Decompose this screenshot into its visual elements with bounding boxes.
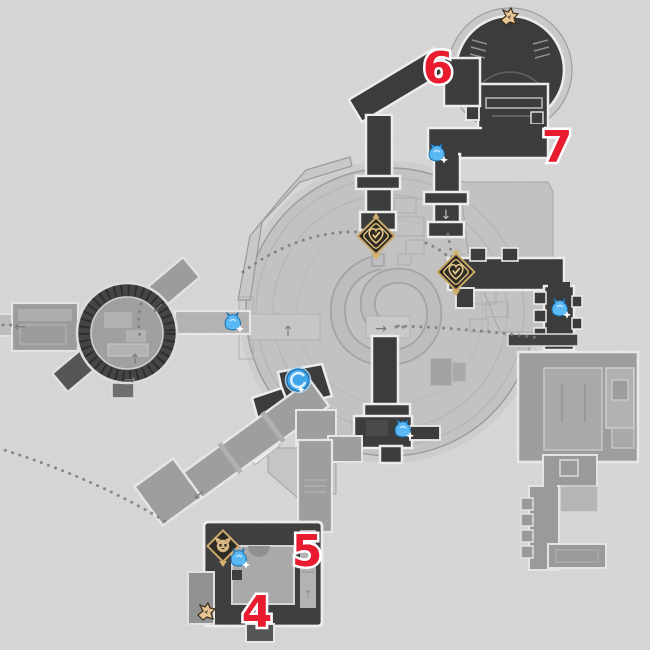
map-canvas[interactable]: ← ↑ ↙ → ↑ → ↓ ↙ ↑ bbox=[0, 0, 650, 650]
north-corridor-down-arrow: ↓ bbox=[441, 208, 452, 223]
storage-strip-arrow: ↑ bbox=[303, 588, 312, 601]
vertical-corridor-west bbox=[366, 115, 392, 220]
ring-exit-arrow: → bbox=[124, 372, 136, 388]
elite-enemy-icon[interactable] bbox=[286, 368, 311, 394]
route-number-6: 6 bbox=[423, 43, 454, 94]
route-number-5: 5 bbox=[292, 526, 323, 577]
route-number-4: 4 bbox=[242, 587, 273, 638]
ring-up-arrow: ↑ bbox=[129, 352, 141, 368]
plaza-exit-arrow: → bbox=[375, 321, 387, 337]
west-corridor-arrow: ← bbox=[14, 319, 26, 335]
southwest-corridor-arrow: ↙ bbox=[193, 487, 205, 503]
plaza-entrance-arrow: ↑ bbox=[282, 324, 294, 340]
game-map[interactable]: ← ↑ ↙ → ↑ → ↓ ↙ ↑ bbox=[0, 0, 650, 650]
route-number-7: 7 bbox=[542, 122, 573, 173]
ring-descend-arrow: ↙ bbox=[152, 300, 164, 316]
